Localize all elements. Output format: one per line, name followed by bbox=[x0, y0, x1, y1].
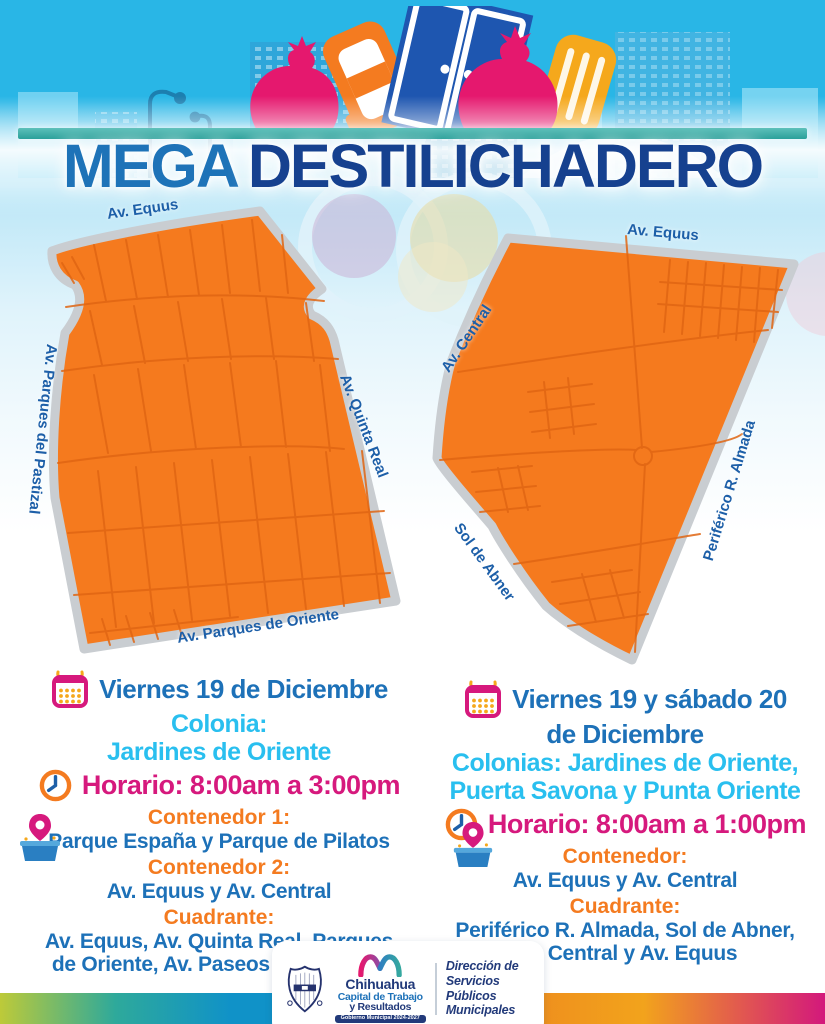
colonia-name: Jardines de Oriente bbox=[8, 738, 430, 766]
title-word-mega: MEGA bbox=[63, 132, 238, 200]
cuadrante-label: Cuadrante: bbox=[430, 895, 820, 919]
contenedor2-label: Contenedor 2: bbox=[8, 856, 430, 880]
event-date-line1: Viernes 19 y sábado 20 bbox=[512, 685, 787, 714]
contenedor-location: Av. Equus y Av. Central bbox=[430, 869, 820, 893]
chihuahua-logo: Chihuahua Capital de Trabajo y Resultado… bbox=[335, 954, 426, 1022]
event-date-line2: de Diciembre bbox=[430, 720, 820, 749]
logo-subtitle-2: y Resultados bbox=[349, 1002, 411, 1013]
pin-container-icon bbox=[450, 818, 496, 870]
chihuahua-coat-of-arms bbox=[284, 958, 326, 1020]
contenedor1-label: Contenedor 1: bbox=[8, 806, 430, 830]
calendar-icon bbox=[50, 670, 90, 710]
footer-divider bbox=[435, 963, 437, 1015]
dept-line2: Servicios Públicos bbox=[446, 974, 532, 1004]
chihuahua-m-logo-icon bbox=[357, 954, 403, 977]
colonia-label: Colonia: bbox=[8, 710, 430, 738]
colonias-line1: Colonias: Jardines de Oriente, bbox=[430, 749, 820, 777]
event-date: Viernes 19 de Diciembre bbox=[99, 675, 388, 704]
calendar-icon bbox=[463, 680, 503, 720]
contenedor2-location: Av. Equus y Av. Central bbox=[8, 880, 430, 904]
dept-line1: Dirección de bbox=[446, 959, 532, 974]
dept-line3: Municipales bbox=[446, 1003, 532, 1018]
department-name: Dirección de Servicios Públicos Municipa… bbox=[446, 959, 532, 1018]
horario-row: Horario: 8:00am a 3:00pm bbox=[8, 768, 430, 803]
event-info-left: Viernes 19 de Diciembre Colonia: Jardine… bbox=[8, 670, 430, 977]
date-row: Viernes 19 y sábado 20 bbox=[430, 680, 820, 720]
page-title: MEGADESTILICHADERO bbox=[0, 134, 825, 198]
clock-icon bbox=[38, 768, 73, 803]
contenedor1-location: Parque España y Parque de Pilatos bbox=[8, 830, 430, 854]
pin-container-icon bbox=[16, 810, 64, 864]
horario-text: Horario: 8:00am a 1:00pm bbox=[488, 809, 806, 839]
logo-banner: Gobierno Municipal 2024-2027 bbox=[335, 1015, 426, 1023]
right-zone-map bbox=[432, 212, 824, 687]
date-row: Viernes 19 de Diciembre bbox=[8, 670, 430, 710]
colonias-line2: Puerta Savona y Punta Oriente bbox=[430, 777, 820, 805]
horario-text: Horario: 8:00am a 3:00pm bbox=[82, 770, 400, 800]
mega-destilichadero-poster: MEGADESTILICHADERO bbox=[0, 0, 825, 1024]
cuadrante-line1: Periférico R. Almada, Sol de Abner, bbox=[430, 919, 820, 943]
footer-card: Chihuahua Capital de Trabajo y Resultado… bbox=[272, 941, 544, 1024]
logo-title: Chihuahua bbox=[345, 977, 415, 991]
title-word-destilichadero: DESTILICHADERO bbox=[248, 132, 762, 200]
cuadrante-label: Cuadrante: bbox=[8, 906, 430, 930]
